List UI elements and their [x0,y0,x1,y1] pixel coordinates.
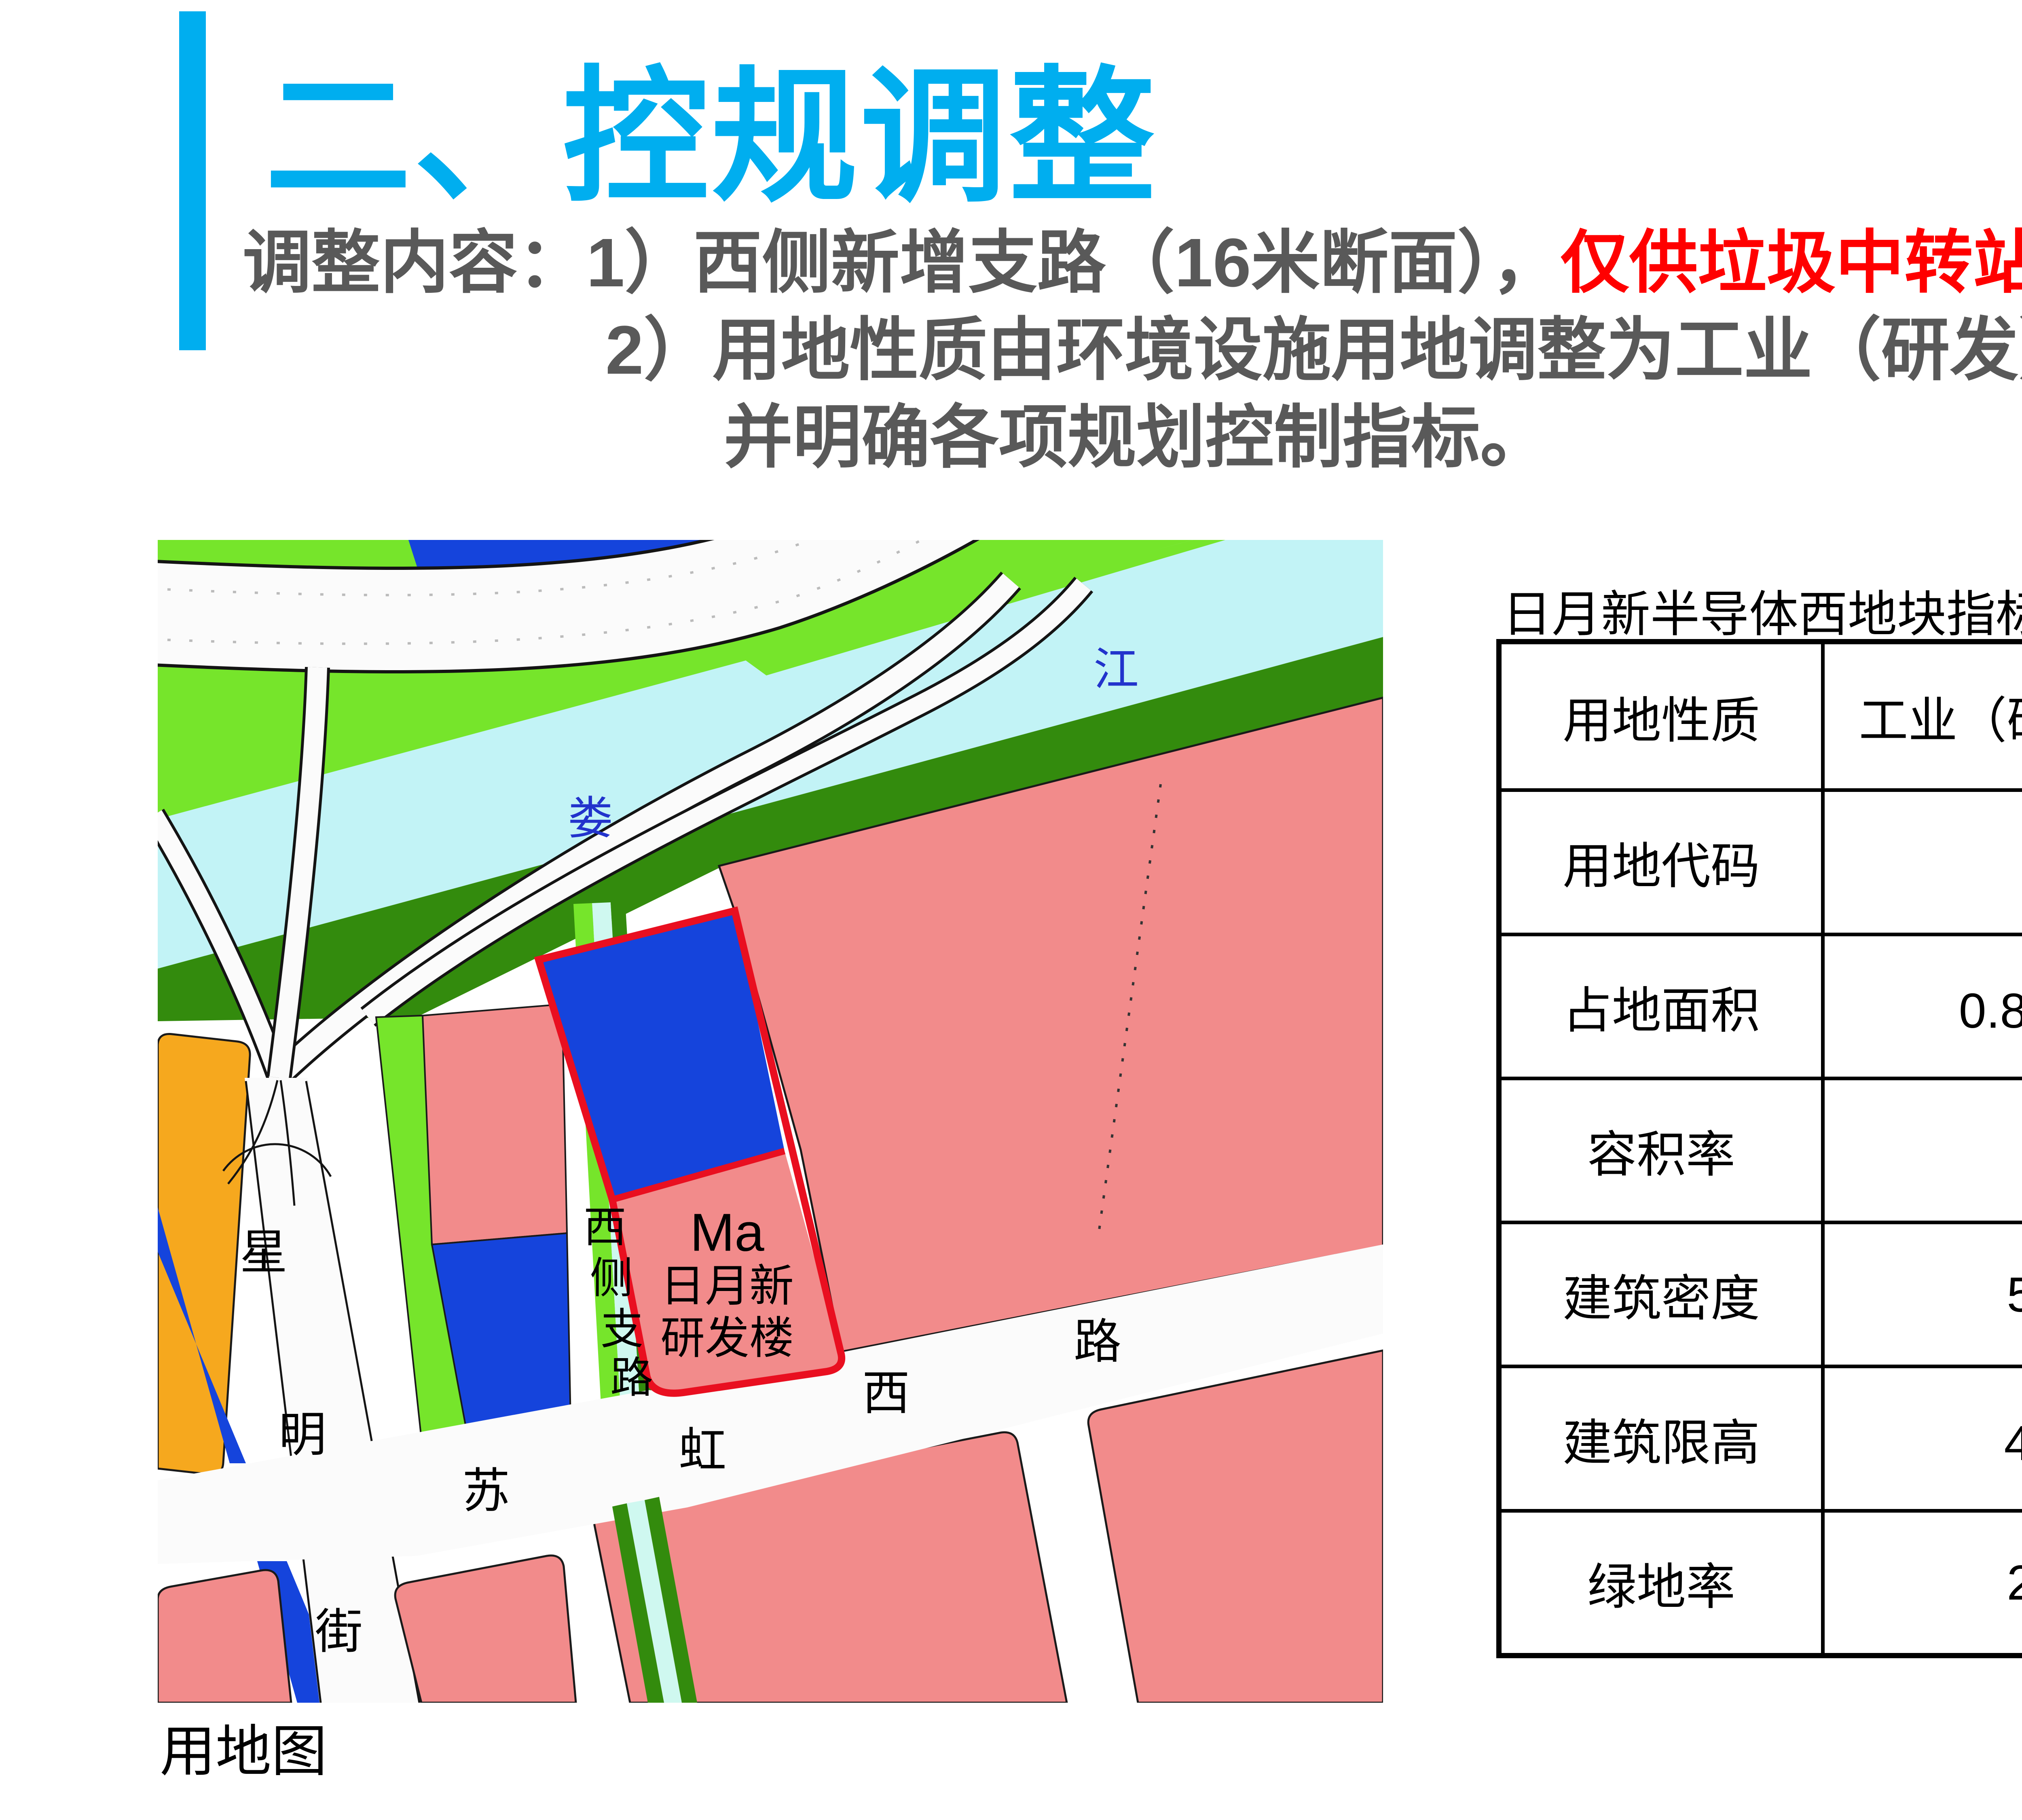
table-row-value: 1.9 [1821,1077,2022,1221]
map-caption: 用地图 [160,1706,327,1787]
body-line-1-red: 仅供垃圾中转站使用； [1561,224,2022,301]
table-row-value: 50% [1821,1221,2022,1365]
label-ming: 明 [279,1408,326,1462]
land-use-map: 娄 江 星 明 街 苏 虹 西 路 西 侧 支 路 Ma 日月新 研发楼 [158,540,1383,1703]
river-label-jiang: 江 [1093,644,1139,695]
body-line-2: 2）用地性质由环境设施用地调整为工业（研发）用地， [605,309,2022,392]
table-row-label: 容积率 [1502,1077,1821,1221]
table-row-value: 0.83公顷 [1821,933,2022,1077]
body-line-1: 调整内容：1）西侧新增支路（16米断面），仅供垃圾中转站使用； [243,222,2022,304]
page-title: 二、控规调整 [265,61,1158,214]
slide-canvas: { "slide": { "title": "二、控规调整", "accent_… [0,0,2022,1820]
label-su: 苏 [462,1464,510,1518]
south-parcel-d [1088,1350,1383,1703]
river-label-lou: 娄 [568,793,613,844]
south-parcel-a [158,1570,291,1703]
table-row-label: 占地面积 [1502,933,1821,1077]
label-xing: 星 [240,1226,288,1279]
table-row-value: Ma [1821,788,2022,932]
body-line-1-gray: 调整内容：1）西侧新增支路（16米断面）， [243,224,1561,301]
parcel-code-label: Ma [690,1203,764,1262]
table-title: 日月新半导体西地块指标一览表 [1502,574,2022,646]
west-pink-parcel [423,1004,567,1244]
table-row-label: 用地性质 [1502,644,1821,788]
label-xi: 西 [862,1367,910,1420]
branch-char-2: 侧 [590,1255,633,1302]
label-lu: 路 [1074,1315,1121,1369]
table-row-label: 用地代码 [1502,788,1821,932]
table-row-label: 建筑限高 [1502,1365,1821,1509]
parcel-name-line1: 日月新 [660,1261,794,1311]
table-row-label: 绿地率 [1502,1509,1821,1653]
table-row-value: 40米 [1821,1365,2022,1509]
parcel-name-line2: 研发楼 [660,1314,794,1363]
branch-char-3: 支 [601,1306,643,1353]
body-line-3: 并明确各项规划控制指标。 [724,396,1549,479]
table-row-value: 20% [1821,1509,2022,1653]
indicators-table: 用地性质 工业（研发）用地 用地代码 Ma 占地面积 0.83公顷 容积率 1.… [1496,639,2022,1658]
branch-char-1: 西 [584,1204,626,1251]
accent-bar [179,11,206,350]
table-row-label: 建筑密度 [1502,1221,1821,1365]
branch-char-4: 路 [610,1354,653,1402]
table-row-value: 工业（研发）用地 [1821,644,2022,788]
label-jie: 街 [315,1605,363,1659]
label-hong: 虹 [679,1424,726,1477]
